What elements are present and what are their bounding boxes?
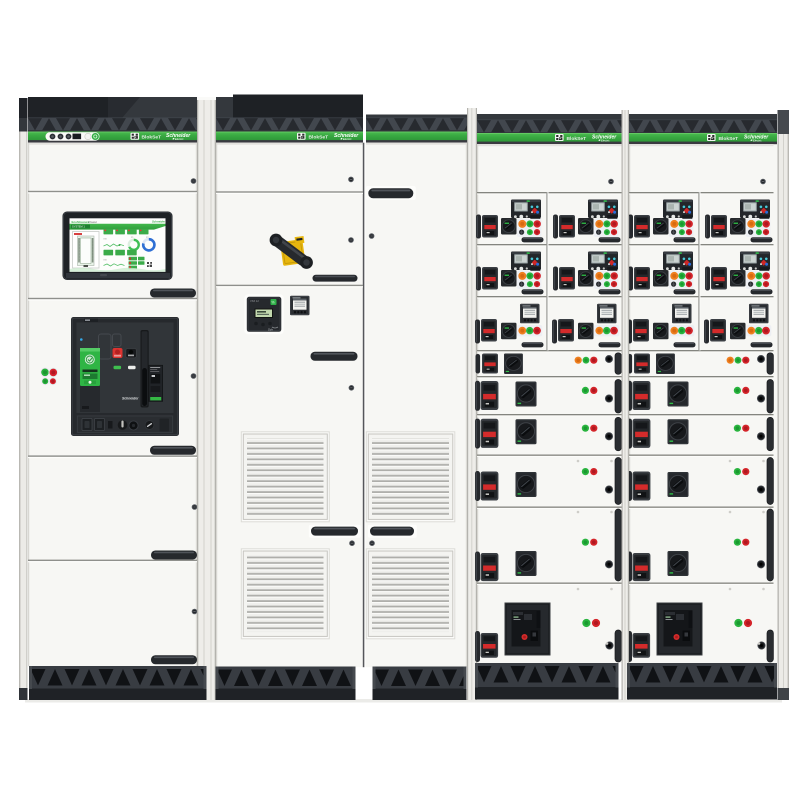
svg-text:EcoStruxure: EcoStruxure — [72, 220, 90, 224]
svg-text:BlokSeT: BlokSeT — [142, 135, 162, 141]
svg-text:Sch: Sch — [268, 328, 273, 332]
svg-text:BlokSeT: BlokSeT — [567, 136, 587, 142]
svg-text:BlokSeT: BlokSeT — [309, 135, 329, 141]
svg-text:Schneider: Schneider — [152, 220, 166, 224]
svg-text:%: % — [272, 300, 275, 304]
svg-text:Schneider: Schneider — [122, 397, 139, 401]
svg-text:SYSTEM 1: SYSTEM 1 — [72, 225, 85, 229]
svg-text:Power: Power — [89, 220, 98, 224]
svg-text:VSX 12: VSX 12 — [250, 299, 259, 303]
